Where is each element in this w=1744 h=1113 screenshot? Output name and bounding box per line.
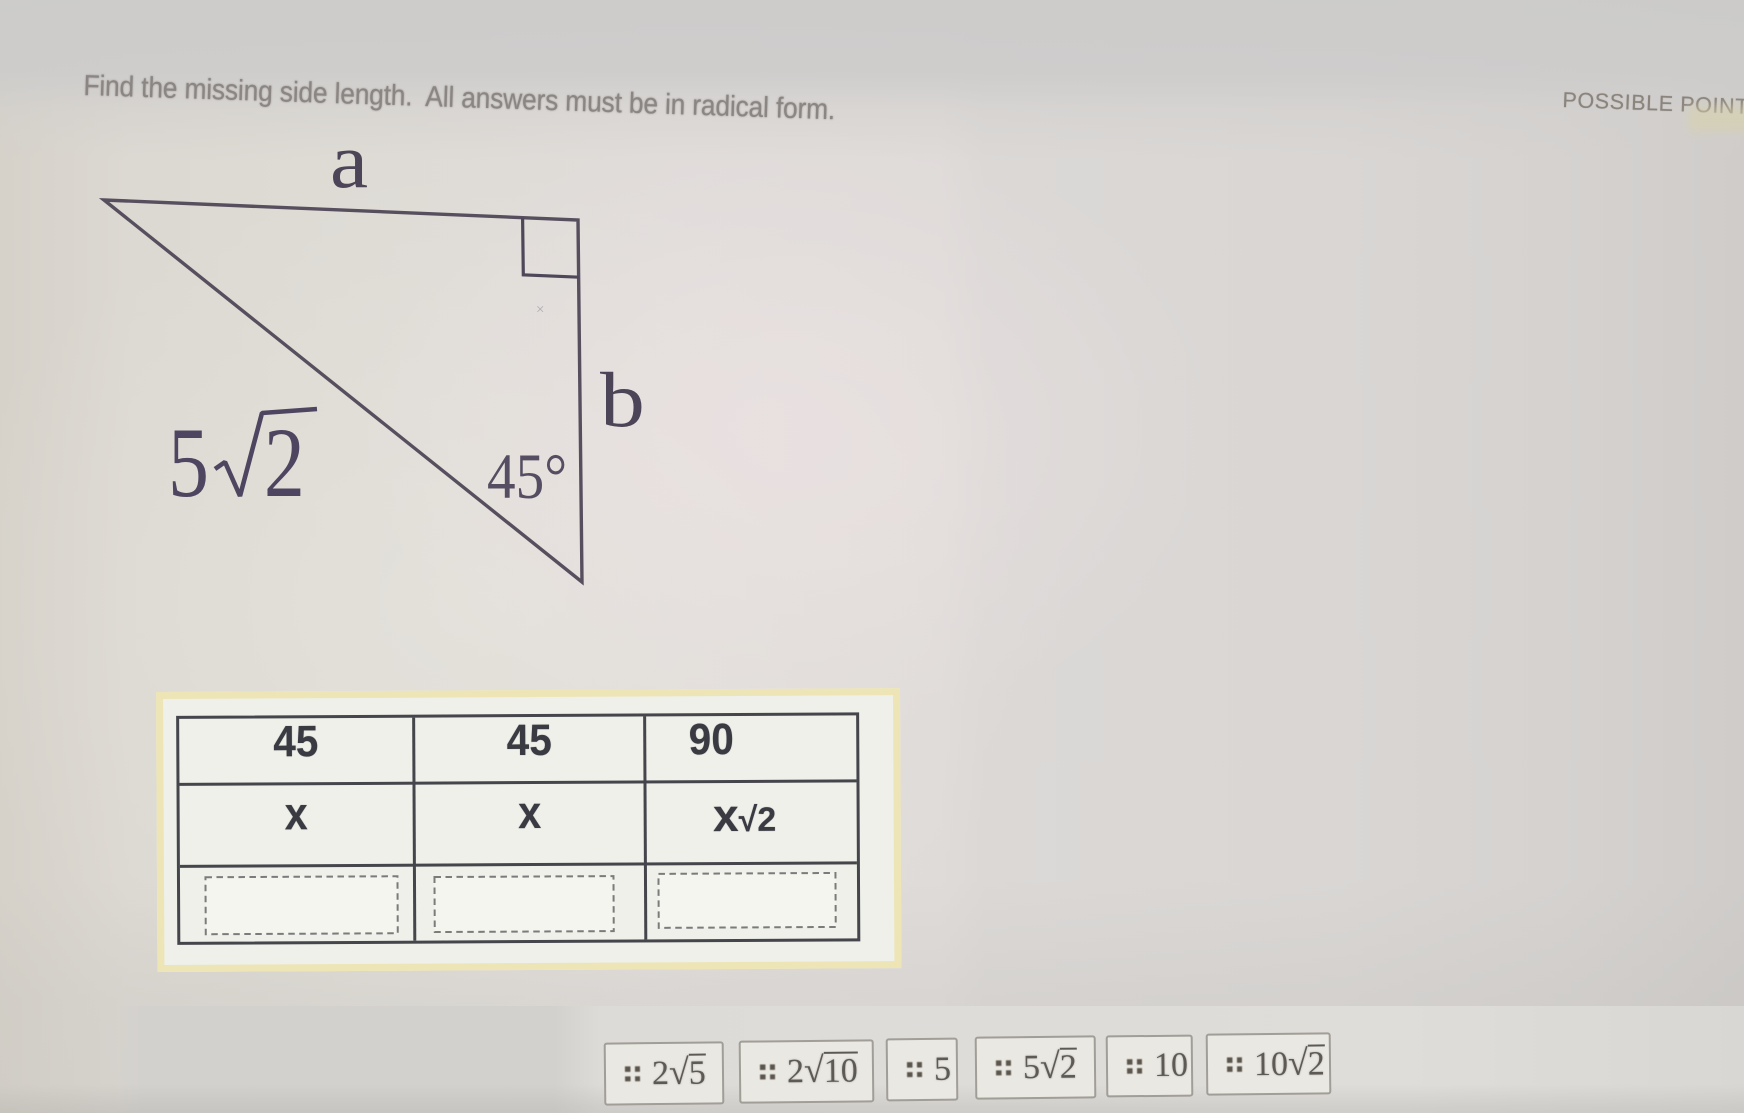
- svg-text:5: 5: [168, 407, 209, 517]
- svg-text:2: 2: [264, 407, 305, 517]
- svg-text:×: ×: [536, 302, 544, 318]
